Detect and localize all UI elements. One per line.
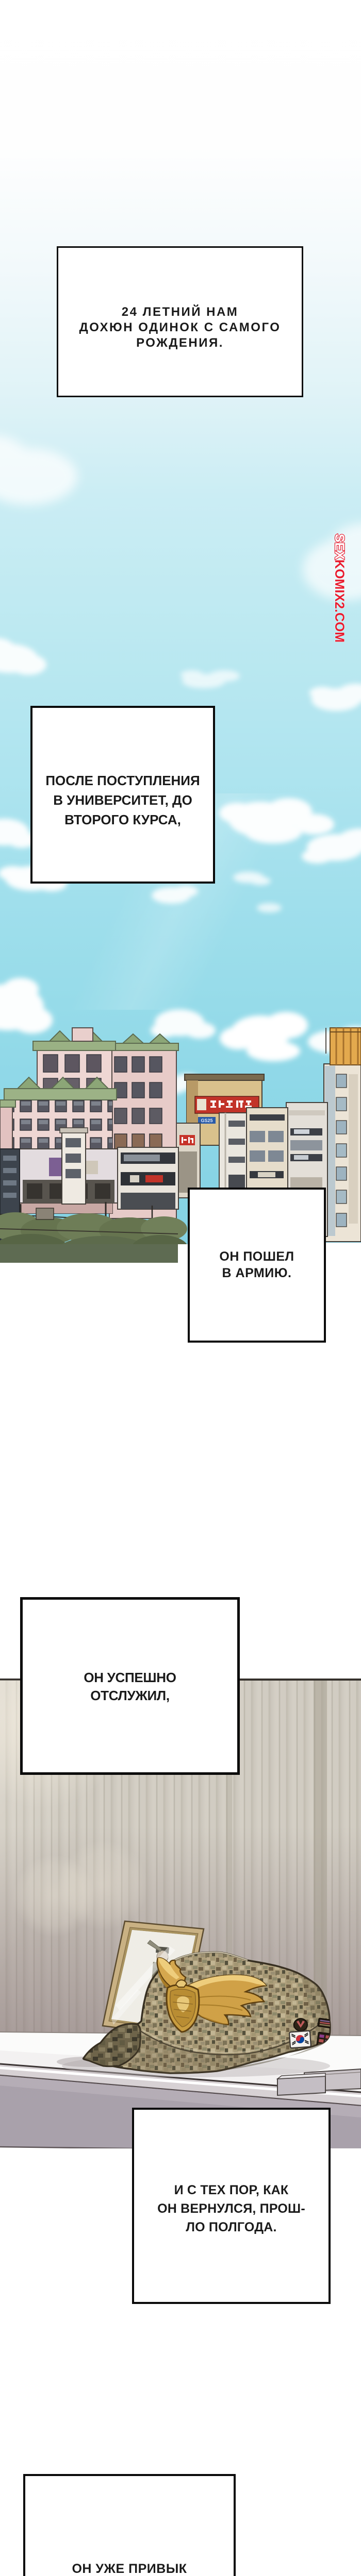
svg-text:GS25: GS25 (201, 1118, 212, 1123)
svg-text:SEXKOMIX2.COM: SEXKOMIX2.COM (332, 534, 347, 642)
